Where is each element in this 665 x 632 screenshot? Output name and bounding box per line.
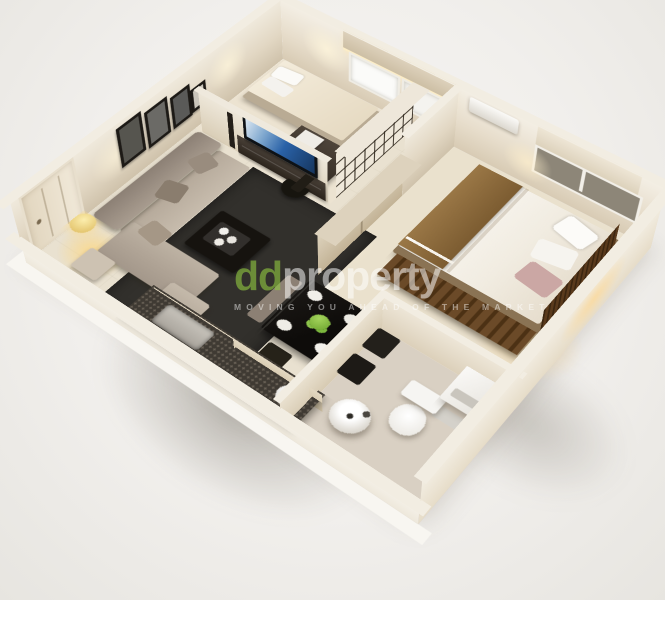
tea-set-tray xyxy=(202,221,252,256)
door-handle xyxy=(36,218,42,226)
green-centerpiece xyxy=(305,311,334,333)
basin-drain xyxy=(345,412,354,420)
place-setting-3 xyxy=(274,317,295,333)
floorplan-render: ddproperty MOVING YOU AHEAD OF THE MARKE… xyxy=(0,0,665,600)
place-setting-1 xyxy=(304,288,325,303)
basin-faucet xyxy=(361,410,372,419)
